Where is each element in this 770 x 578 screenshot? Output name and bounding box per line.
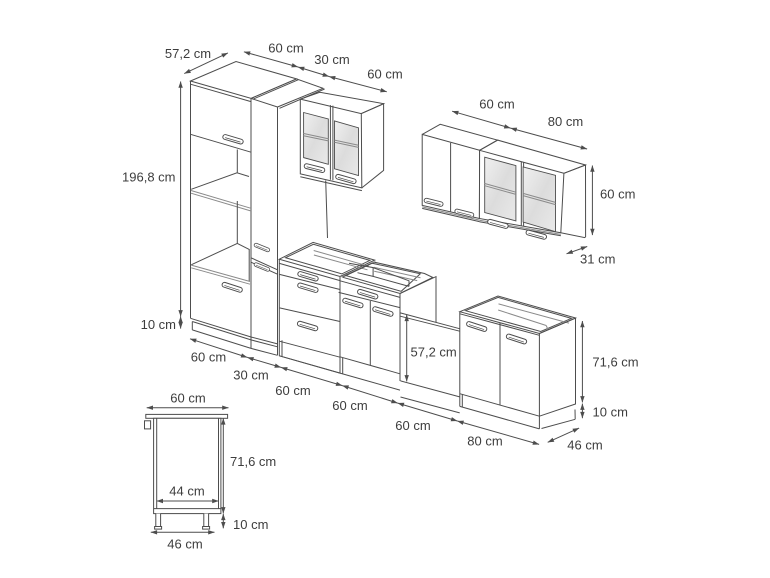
svg-text:60 cm: 60 cm xyxy=(275,383,310,398)
svg-text:57,2 cm: 57,2 cm xyxy=(165,46,211,61)
svg-text:10 cm: 10 cm xyxy=(141,317,176,332)
svg-text:60 cm: 60 cm xyxy=(600,187,635,202)
svg-text:60 cm: 60 cm xyxy=(191,350,226,365)
svg-text:60 cm: 60 cm xyxy=(170,391,205,406)
svg-text:10 cm: 10 cm xyxy=(233,517,268,532)
svg-text:30 cm: 30 cm xyxy=(314,52,349,67)
svg-text:10 cm: 10 cm xyxy=(593,405,628,420)
svg-text:30 cm: 30 cm xyxy=(233,368,268,383)
svg-text:71,6 cm: 71,6 cm xyxy=(592,355,638,370)
svg-text:60 cm: 60 cm xyxy=(332,398,367,413)
svg-text:71,6 cm: 71,6 cm xyxy=(230,454,276,469)
svg-text:46 cm: 46 cm xyxy=(567,438,602,453)
svg-text:57,2 cm: 57,2 cm xyxy=(411,345,457,360)
svg-text:60 cm: 60 cm xyxy=(395,418,430,433)
svg-text:44 cm: 44 cm xyxy=(169,484,204,499)
svg-text:31 cm: 31 cm xyxy=(580,252,615,267)
svg-text:60 cm: 60 cm xyxy=(367,67,402,82)
svg-text:80 cm: 80 cm xyxy=(548,114,583,129)
svg-text:60 cm: 60 cm xyxy=(268,41,303,56)
svg-text:60 cm: 60 cm xyxy=(479,97,514,112)
svg-text:46 cm: 46 cm xyxy=(167,537,202,552)
svg-text:80 cm: 80 cm xyxy=(467,434,502,449)
svg-text:196,8 cm: 196,8 cm xyxy=(122,170,175,185)
